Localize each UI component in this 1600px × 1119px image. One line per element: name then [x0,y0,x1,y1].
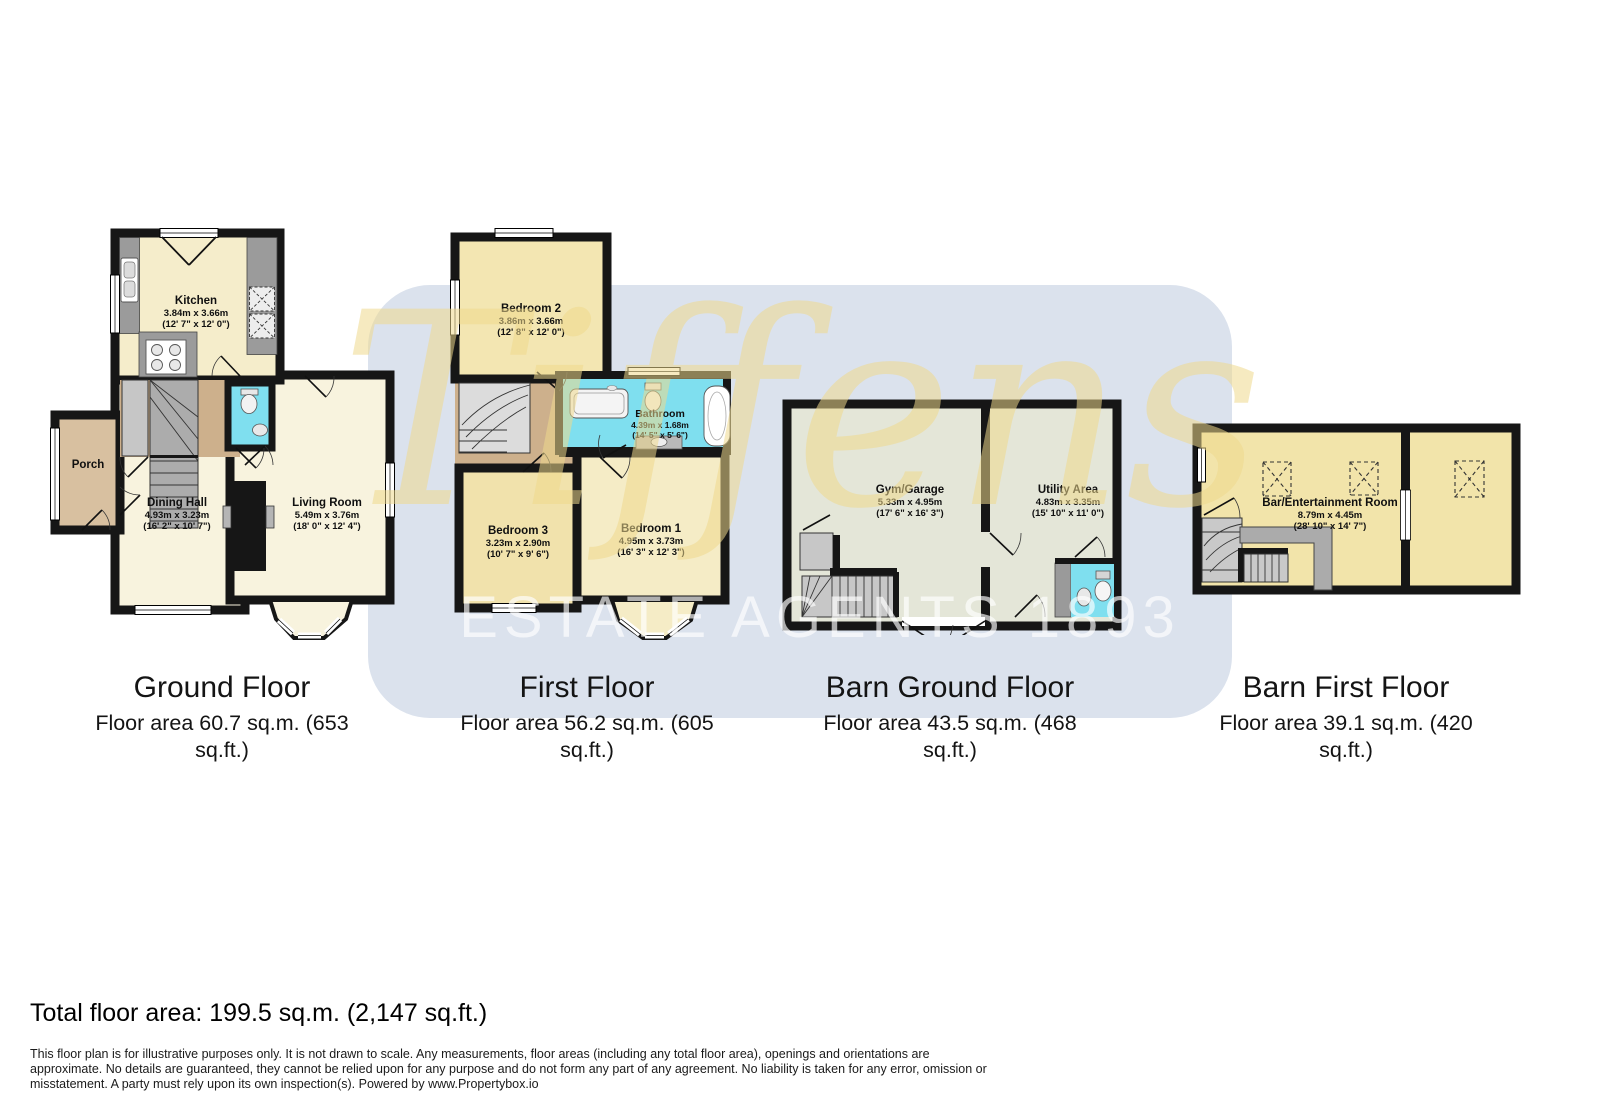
plan-barn-ground-floor: Gym/Garage 5.33m x 4.95m (17' 6" x 16' 3… [775,395,1125,635]
room-label-utility: Utility Area 4.83m x 3.35m (15' 10" x 11… [988,484,1148,519]
caption-barn-first-floor: Floor area 39.1 sq.m. (420 sq.ft.) [1191,710,1501,764]
title-barn-first-floor: Barn First Floor [1243,671,1450,705]
disclaimer-line-2: approximate. No details are guaranteed, … [30,1062,987,1077]
disclaimer-text: This floor plan is for illustrative purp… [30,1047,987,1092]
disclaimer-line-1: This floor plan is for illustrative purp… [30,1047,987,1062]
caption-ground-floor: Floor area 60.7 sq.m. (653 sq.ft.) [67,710,377,764]
room-label-bedroom2: Bedroom 2 3.86m x 3.66m (12' 8" x 12' 0"… [451,303,611,338]
room-label-bar: Bar/Entertainment Room 8.79m x 4.45m (28… [1210,497,1450,532]
room-label-kitchen: Kitchen 3.84m x 3.66m (12' 7" x 12' 0") [116,295,276,330]
plan-barn-first-floor: Bar/Entertainment Room 8.79m x 4.45m (28… [1170,420,1530,600]
room-label-porch: Porch [48,459,128,472]
disclaimer-line-3: misstatement. A party must rely upon its… [30,1077,987,1092]
total-floor-area: Total floor area: 199.5 sq.m. (2,147 sq.… [30,999,487,1028]
room-label-bedroom1: Bedroom 1 4.95m x 3.73m (16' 3" x 12' 3"… [571,523,731,558]
title-barn-ground-floor: Barn Ground Floor [826,671,1074,705]
room-label-gym: Gym/Garage 5.33m x 4.95m (17' 6" x 16' 3… [830,484,990,519]
room-label-bathroom: Bathroom 4.39m x 1.68m (14' 5" x 5' 6") [600,408,720,440]
first-floor-drawing [440,225,740,655]
caption-first-floor: Floor area 56.2 sq.m. (605 sq.ft.) [432,710,742,764]
room-label-living: Living Room 5.49m x 3.76m (18' 0" x 12' … [247,497,407,532]
caption-barn-ground-floor: Floor area 43.5 sq.m. (468 sq.ft.) [795,710,1105,764]
plan-first-floor: Bedroom 2 3.86m x 3.66m (12' 8" x 12' 0"… [440,225,740,655]
title-first-floor: First Floor [520,671,655,705]
plan-ground-floor: Kitchen 3.84m x 3.66m (12' 7" x 12' 0") … [40,225,410,655]
room-label-dining: Dining Hall 4.93m x 3.23m (16' 2" x 10' … [97,497,257,532]
ground-floor-drawing [40,225,410,655]
title-ground-floor: Ground Floor [134,671,311,705]
floorplan-canvas: Kitchen 3.84m x 3.66m (12' 7" x 12' 0") … [0,0,1600,1119]
